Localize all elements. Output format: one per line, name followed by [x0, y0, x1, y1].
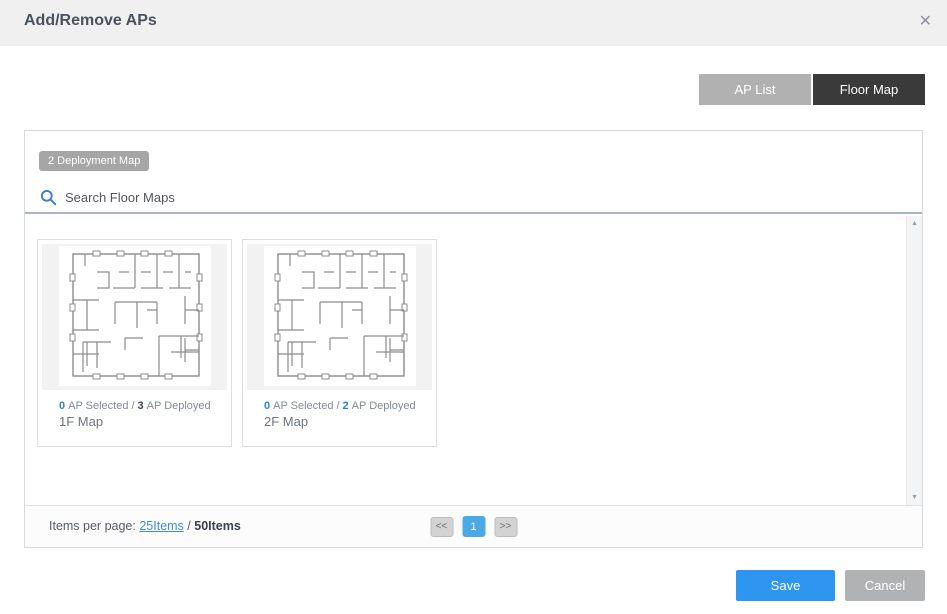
next-page-button[interactable]: >> [494, 517, 517, 537]
floor-plan-thumbnail [42, 244, 227, 390]
floor-map-card-2f[interactable]: 0AP Selected/2AP Deployed 2F Map [242, 239, 437, 447]
search-icon [40, 189, 57, 206]
current-page-button[interactable]: 1 [462, 516, 485, 537]
items-separator: / [187, 519, 190, 533]
vertical-scrollbar[interactable]: ▲ ▼ [906, 216, 922, 505]
items-per-page: Items per page: 25Items / 50Items [49, 519, 241, 533]
floor-map-panel: 2 Deployment Map [24, 130, 923, 548]
deployment-map-count-badge: 2 Deployment Map [39, 151, 149, 171]
items-total: 50Items [194, 519, 241, 533]
tab-ap-list[interactable]: AP List [699, 74, 811, 105]
stats-separator: / [336, 400, 339, 412]
ap-count-stats: 0AP Selected/3AP Deployed [59, 400, 231, 412]
selected-label: AP Selected [68, 400, 128, 412]
selected-count: 0 [59, 400, 65, 412]
items-per-page-label: Items per page: [49, 519, 136, 533]
cancel-button[interactable]: Cancel [845, 570, 925, 601]
search-input[interactable] [65, 190, 485, 205]
prev-page-button[interactable]: << [430, 517, 453, 537]
floor-plan-thumbnail [247, 244, 432, 390]
deployed-count: 3 [138, 400, 144, 412]
view-tabs: AP List Floor Map [699, 74, 925, 105]
pagination: << 1 >> [430, 516, 517, 537]
floor-map-card-1f[interactable]: 0AP Selected/3AP Deployed 1F Map [37, 239, 232, 447]
floor-map-card-list: 0AP Selected/3AP Deployed 1F Map [37, 239, 437, 447]
floor-map-name: 1F Map [59, 414, 231, 429]
deployed-label: AP Deployed [352, 400, 416, 412]
deployed-count: 2 [343, 400, 349, 412]
tab-floor-map[interactable]: Floor Map [813, 74, 925, 105]
floor-map-content: 0AP Selected/3AP Deployed 1F Map [25, 216, 922, 505]
add-remove-aps-dialog: Add/Remove APs ✕ AP List Floor Map 2 Dep… [0, 0, 947, 614]
deployed-label: AP Deployed [147, 400, 211, 412]
close-icon[interactable]: ✕ [919, 11, 932, 33]
pagination-footer: Items per page: 25Items / 50Items << 1 >… [25, 505, 922, 547]
items-25-link[interactable]: 25Items [139, 519, 183, 533]
ap-count-stats: 0AP Selected/2AP Deployed [264, 400, 436, 412]
stats-separator: / [131, 400, 134, 412]
floor-map-name: 2F Map [264, 414, 436, 429]
save-button[interactable]: Save [736, 570, 835, 601]
search-bar [25, 183, 922, 214]
selected-count: 0 [264, 400, 270, 412]
scroll-up-icon[interactable]: ▲ [911, 220, 918, 227]
dialog-header: Add/Remove APs ✕ [0, 0, 947, 46]
selected-label: AP Selected [273, 400, 333, 412]
dialog-title: Add/Remove APs [24, 12, 157, 30]
scroll-down-icon[interactable]: ▼ [911, 494, 918, 501]
